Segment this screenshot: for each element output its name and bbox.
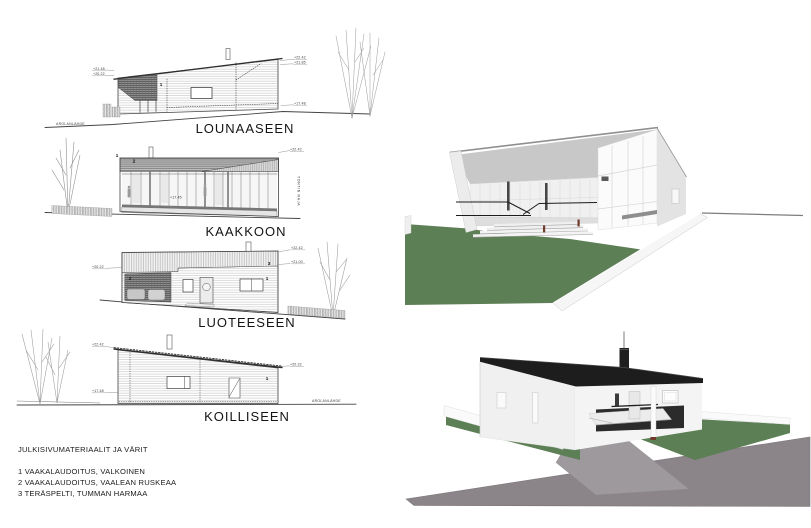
- level-annotation: +22.42: [294, 56, 306, 60]
- level-annotation: +22.42: [290, 148, 302, 152]
- elevation-northwest-drawing: +20.22 +22.42 +21.00 2 3 1: [92, 242, 350, 319]
- elevation-southeast-drawing: +22.42 +17.45 1 2 TONTIN RAJA: [45, 138, 304, 219]
- legend-item-1: 1 VAAKALAUDOITUS, VALKOINEN: [18, 466, 176, 477]
- level-annotation: +17.48: [92, 389, 104, 393]
- material-marker: 2: [129, 276, 132, 281]
- tree: [52, 138, 80, 214]
- level-annotation: +22.42: [291, 246, 303, 250]
- gable-wall: [657, 130, 686, 227]
- interior-glazing: [470, 177, 607, 220]
- tree: [336, 28, 385, 118]
- material-marker: 1: [116, 153, 119, 158]
- level-annotation: +20.22: [93, 72, 105, 76]
- level-annotation: +21.48: [93, 67, 105, 71]
- material-marker: 3: [268, 261, 271, 266]
- material-marker: 1: [266, 276, 269, 281]
- elevation-label-northwest: LUOTEESEEN: [190, 315, 304, 330]
- elevation-northeast-drawing: +22.42 +17.48 +20.32 1 AROLANLÄHDE: [17, 329, 356, 405]
- elevation-label-southeast: KAAKKOON: [190, 224, 302, 239]
- site-label: AROLANLÄHDE: [56, 122, 85, 126]
- level-annotation: +22.42: [92, 343, 104, 347]
- render-entrance-view: [406, 332, 810, 507]
- elevation-label-southwest: LOUNAASEEN: [180, 121, 310, 136]
- property-boundary-label: TONTIN RAJA: [297, 176, 301, 206]
- level-annotation: +17.48: [294, 101, 306, 105]
- level-annotation: +17.45: [170, 196, 182, 200]
- material-marker: 1: [266, 376, 269, 381]
- elevation-label-northeast: KOILLISEEN: [192, 409, 302, 424]
- legend-item-2: 2 VAAKALAUDOITUS, VAALEAN RUSKEAA: [18, 477, 176, 488]
- fence-line: [702, 213, 803, 216]
- level-annotation: +20.32: [290, 363, 302, 367]
- site-label: AROLANLÄHDE: [312, 399, 341, 403]
- material-marker: 1: [160, 82, 163, 87]
- level-annotation: +21.85: [294, 60, 306, 64]
- level-annotation: +20.22: [92, 265, 104, 269]
- chimney: [620, 348, 630, 370]
- level-annotation: +21.00: [291, 260, 303, 264]
- legend-items: 1 VAAKALAUDOITUS, VALKOINEN 2 VAAKALAUDO…: [18, 466, 176, 499]
- tree: [22, 329, 70, 404]
- materials-legend: JULKISIVUMATERIAALIT JA VÄRIT 1 VAAKALAU…: [18, 445, 176, 499]
- render-terrace-view: [405, 128, 803, 312]
- elevation-southwest-drawing: +21.48 +20.22 +22.42 +21.85 +17.48 1 ARO…: [45, 28, 385, 128]
- presentation-sheet: +21.48 +20.22 +22.42 +21.85 +17.48 1 ARO…: [0, 0, 811, 528]
- material-marker: 2: [133, 159, 136, 164]
- legend-item-3: 3 TERÄSPELTI, TUMMAN HARMAA: [18, 488, 176, 499]
- porch-column: [651, 386, 656, 437]
- tree: [318, 242, 350, 317]
- legend-heading: JULKISIVUMATERIAALIT JA VÄRIT: [18, 445, 176, 454]
